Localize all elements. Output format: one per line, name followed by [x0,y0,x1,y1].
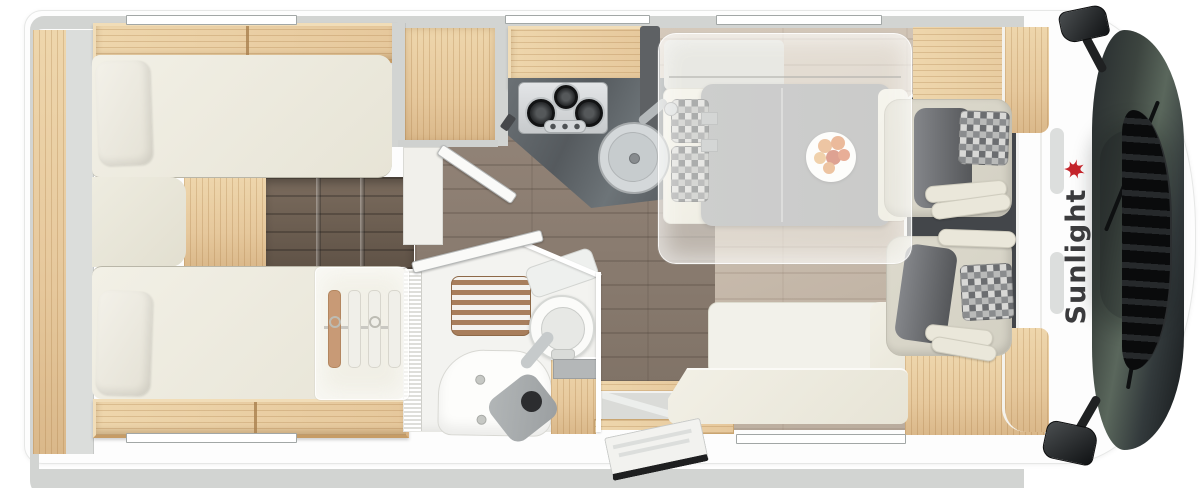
partition-wall [392,23,406,147]
wall-window [716,15,882,25]
hanger-hook-icon [329,316,341,328]
drop-down-bed-overlay [658,33,912,264]
bed-side-rail [66,30,94,454]
seat-armrest [938,229,1017,249]
seat-checker-driver [960,263,1015,322]
motorhome-floorplan: Sunlight [0,0,1200,488]
brand-logo: Sunlight [1055,140,1097,340]
bench-backrest [708,302,890,376]
bed-overlay-edge [669,76,901,78]
hanger-hook-icon [369,316,381,328]
sink-drain [629,153,640,164]
clothes-hanger-icon [348,290,361,368]
seat-checker-passenger [958,110,1010,166]
sunlight-palm-icon [1063,156,1089,182]
hob-controls [544,120,586,133]
brand-logo-text: Sunlight [1061,189,1092,325]
bedroom-steps [264,177,414,269]
clothes-hanger-icon [328,290,341,368]
wall-window [505,15,650,24]
wall-window [126,433,297,443]
basin-drain [476,415,486,425]
wall-window [126,15,297,25]
forward-bench-seat [668,368,908,424]
pillow-top-bed [95,60,153,166]
bathroom-side-cabinet [403,147,443,245]
kitchen-cabinet-base [398,140,498,147]
bathroom-wall-right [596,272,601,432]
pillow-bottom-bed [95,290,153,396]
bed-platform-wood [184,177,266,269]
wall-window [736,434,906,444]
clothes-hanger-icon [388,290,401,368]
step-edge [360,177,365,269]
mixer-knob [521,391,542,412]
wardrobe [315,267,409,400]
bed-corner-cushion [92,177,186,267]
kitchen-cabinet-block [405,28,495,142]
vanity-drawer [553,359,599,379]
basin-drain [475,375,485,385]
shower-slat-mat [451,276,531,336]
shelf-divider [254,402,257,435]
gas-hob [518,82,608,134]
gas-burner-icon [554,85,578,109]
step-edge [316,177,321,269]
rear-wall-shelf [33,30,69,454]
clothes-hanger-icon [368,290,381,368]
